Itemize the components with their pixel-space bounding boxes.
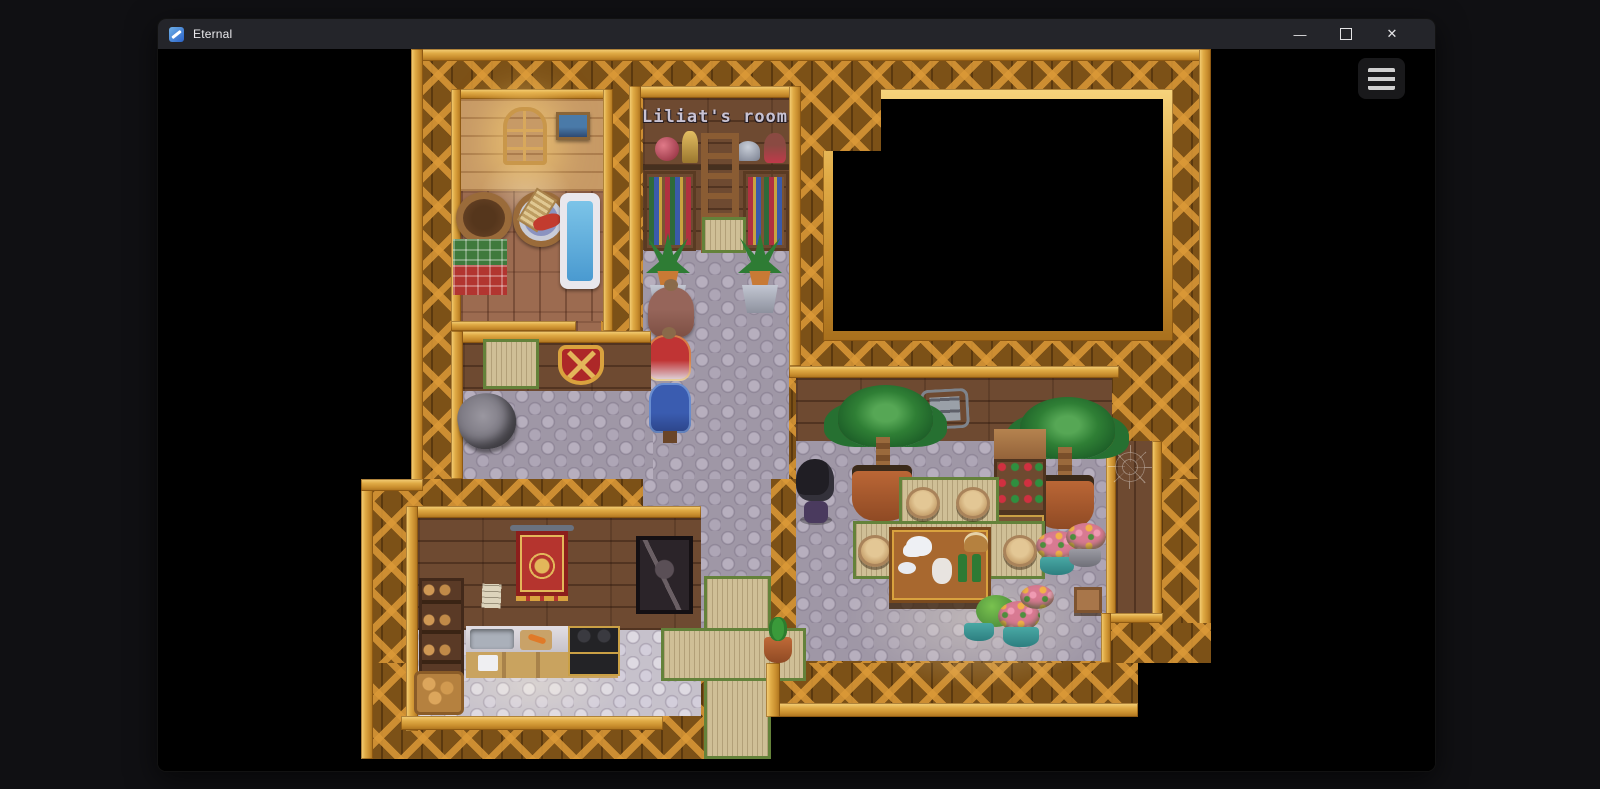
- wall-shield: [558, 345, 604, 385]
- room-frame: [789, 366, 1119, 378]
- wall-note: [478, 579, 504, 614]
- carrot: [528, 633, 547, 644]
- bread-basket: [414, 671, 464, 715]
- minimize-button[interactable]: —: [1277, 19, 1323, 49]
- app-icon-glyph: [171, 29, 182, 38]
- cactus: [769, 617, 787, 641]
- round-stool: [906, 487, 940, 519]
- tatami-door: [483, 339, 539, 389]
- round-stool: [956, 487, 990, 519]
- wine-bottle: [972, 554, 981, 582]
- room-frame: [789, 86, 801, 366]
- flower-pot: [1003, 627, 1039, 647]
- close-button[interactable]: ✕: [1369, 19, 1415, 49]
- red-towel: [453, 265, 507, 295]
- character-hair: [796, 459, 834, 501]
- doll: [764, 133, 786, 163]
- red-tapestry: [516, 531, 568, 601]
- cutting-board: [520, 630, 552, 650]
- landscape-painting: [556, 112, 590, 140]
- mannequin-head: [662, 327, 676, 339]
- gold-statue: [682, 131, 698, 163]
- green-towel: [453, 239, 507, 267]
- round-stool: [1003, 535, 1037, 567]
- bathhouse-window: [503, 107, 547, 165]
- bathtub-water: [567, 201, 593, 281]
- flower-pot: [1069, 549, 1101, 567]
- basket: [964, 532, 988, 552]
- teacup: [898, 562, 916, 574]
- minimize-icon: —: [1294, 27, 1307, 42]
- bookshelf: [743, 171, 789, 251]
- game-menu-button[interactable]: [1358, 58, 1405, 99]
- wall-frame: [1199, 49, 1211, 663]
- wooden-crate: [1074, 587, 1102, 613]
- flower-cluster: [1066, 523, 1106, 551]
- helmet: [736, 141, 760, 161]
- wine-rack: [994, 459, 1046, 513]
- app-icon: [169, 27, 184, 42]
- mannequin-blue-coat: [649, 383, 691, 433]
- wall-frame: [361, 479, 373, 759]
- armor-picture: [636, 536, 693, 614]
- stove: [568, 626, 620, 676]
- bookshelf: [644, 171, 696, 251]
- room-frame: [451, 89, 613, 99]
- hamburger-menu-icon: [1368, 68, 1395, 90]
- dark-room: [833, 99, 1163, 331]
- wine-bottle: [958, 554, 967, 582]
- bread-shelf: [419, 578, 464, 676]
- hand-towel: [478, 655, 498, 671]
- game-viewport[interactable]: Liliat's room: [158, 49, 1435, 771]
- sink: [470, 629, 514, 649]
- mannequin-red-outfit: [647, 335, 691, 381]
- outer-wall: [1111, 623, 1211, 663]
- window-controls: — ✕: [1277, 19, 1435, 49]
- title-bar: Eternal — ✕: [158, 19, 1435, 49]
- map-label: Liliat's room: [629, 107, 801, 127]
- wall-frame: [1101, 613, 1111, 663]
- flower-cluster: [1020, 585, 1054, 609]
- room-frame: [451, 321, 576, 331]
- room-frame: [629, 86, 801, 98]
- dining-table: [889, 527, 991, 603]
- wine-rack-hood: [994, 429, 1046, 459]
- mannequin-stand: [663, 431, 677, 443]
- close-icon: ✕: [1387, 26, 1398, 42]
- room-frame: [603, 89, 613, 331]
- flower-pot: [964, 623, 994, 641]
- wall-frame: [766, 663, 780, 717]
- wall-frame: [411, 49, 423, 481]
- character-body: [804, 501, 828, 523]
- maximize-icon: [1340, 28, 1352, 40]
- mannequin-head: [664, 279, 678, 291]
- spider-web: [1108, 445, 1152, 489]
- window-title: Eternal: [193, 27, 232, 41]
- player-character: [794, 459, 838, 527]
- wall-frame: [361, 479, 423, 491]
- round-stool: [858, 535, 892, 567]
- wall-frame: [771, 703, 1138, 717]
- room-frame: [451, 331, 651, 343]
- teapot: [906, 536, 932, 556]
- wooden-tub: [456, 192, 512, 244]
- tatami-patch: [702, 217, 746, 253]
- plant-pedestal: [742, 285, 778, 313]
- room-frame: [401, 716, 663, 730]
- maximize-button[interactable]: [1323, 19, 1369, 49]
- crystal-orb: [655, 137, 679, 161]
- app-window: Eternal — ✕: [157, 18, 1436, 772]
- room-frame: [406, 506, 701, 518]
- pitcher: [932, 558, 952, 584]
- bathtub: [560, 193, 600, 289]
- wall-frame: [411, 49, 1211, 61]
